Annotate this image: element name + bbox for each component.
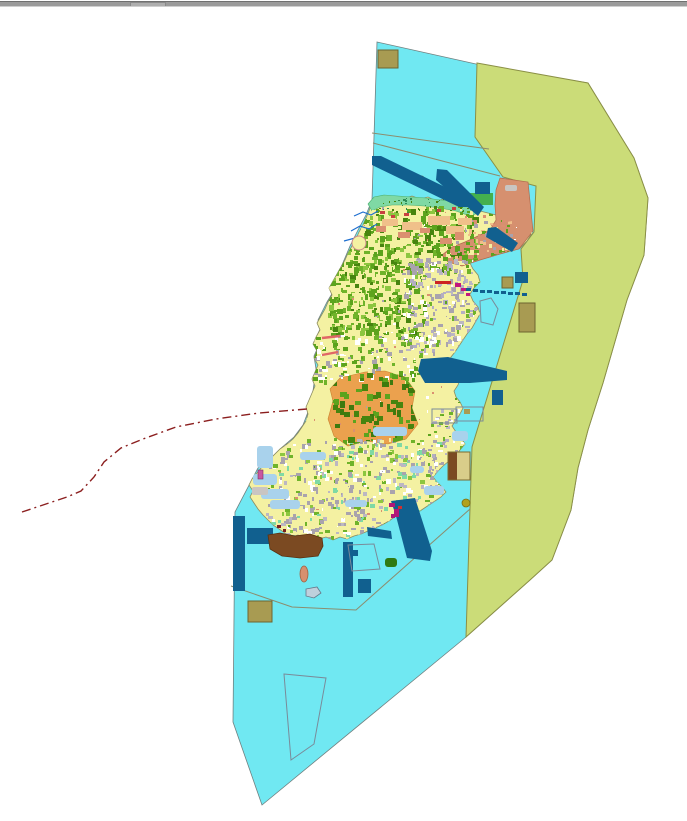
khaki-block-top bbox=[378, 50, 398, 68]
speckle bbox=[514, 239, 516, 240]
speckle bbox=[335, 213, 340, 219]
speckle bbox=[319, 532, 323, 534]
speckle bbox=[343, 236, 346, 240]
speckle bbox=[408, 305, 412, 309]
speckle bbox=[342, 290, 347, 293]
speckle bbox=[363, 257, 365, 262]
speckle bbox=[333, 241, 336, 243]
speckle bbox=[381, 366, 386, 368]
speckle bbox=[470, 310, 473, 312]
speckle bbox=[322, 366, 326, 369]
speckle bbox=[394, 346, 396, 348]
speckle bbox=[312, 349, 315, 353]
speckle bbox=[316, 491, 318, 494]
speckle bbox=[421, 245, 424, 247]
speckle bbox=[448, 340, 452, 344]
speckle bbox=[449, 412, 453, 415]
speckle bbox=[335, 266, 337, 269]
speckle bbox=[401, 270, 403, 273]
speckle bbox=[364, 225, 365, 226]
shallow-water-patches-item bbox=[452, 431, 468, 441]
speckle bbox=[476, 239, 478, 243]
speckle bbox=[474, 308, 477, 311]
speckle bbox=[367, 513, 370, 515]
speckle bbox=[375, 452, 378, 457]
speckle bbox=[410, 255, 412, 258]
speckle bbox=[354, 272, 358, 275]
speckle bbox=[278, 470, 281, 472]
speckle bbox=[398, 333, 401, 337]
speckle bbox=[378, 216, 381, 221]
speckle bbox=[400, 248, 404, 252]
speckle bbox=[414, 367, 418, 371]
speckle bbox=[350, 300, 353, 305]
speckle bbox=[454, 259, 458, 264]
speckle bbox=[319, 527, 322, 529]
speckle bbox=[318, 377, 322, 380]
speckle bbox=[402, 441, 405, 444]
speckle bbox=[362, 287, 365, 293]
speckle bbox=[436, 444, 440, 447]
speckle bbox=[414, 238, 416, 239]
speckle bbox=[368, 407, 371, 411]
speckle bbox=[306, 486, 310, 491]
speckle bbox=[368, 471, 371, 476]
speckle bbox=[440, 229, 443, 231]
speckle bbox=[376, 522, 381, 524]
speckle bbox=[337, 251, 341, 254]
speckle bbox=[319, 380, 323, 383]
speckle bbox=[405, 200, 407, 202]
speckle bbox=[436, 343, 439, 347]
speckle bbox=[391, 212, 393, 213]
speckle bbox=[359, 490, 361, 494]
speckle bbox=[328, 491, 330, 493]
speckle bbox=[418, 270, 423, 274]
navy-pier-chain-item bbox=[466, 288, 471, 291]
speckle bbox=[357, 497, 360, 500]
peach-patches-item bbox=[402, 222, 422, 230]
map-canvas[interactable] bbox=[0, 0, 687, 821]
speckle bbox=[352, 333, 357, 336]
speckle bbox=[420, 311, 423, 314]
speckle bbox=[396, 402, 403, 408]
speckle bbox=[426, 396, 429, 399]
speckle bbox=[402, 472, 406, 475]
speckle bbox=[374, 266, 378, 270]
magenta-cluster-port-item bbox=[391, 514, 395, 518]
speckle bbox=[334, 226, 337, 228]
speckle bbox=[346, 279, 349, 281]
speckle bbox=[393, 323, 396, 325]
speckle bbox=[386, 331, 387, 334]
speckle bbox=[337, 229, 338, 231]
speckle bbox=[417, 451, 420, 455]
speckle bbox=[440, 445, 443, 447]
speckle bbox=[331, 210, 334, 215]
speckle bbox=[317, 461, 322, 464]
speckle bbox=[455, 256, 458, 259]
speckle bbox=[436, 201, 438, 203]
speckle bbox=[408, 424, 413, 429]
speckle bbox=[352, 216, 357, 220]
speckle bbox=[298, 360, 300, 363]
speckle bbox=[401, 455, 404, 459]
speckle bbox=[382, 285, 384, 288]
speckle bbox=[397, 410, 401, 417]
speckle bbox=[406, 208, 407, 210]
speckle bbox=[429, 466, 432, 470]
speckle bbox=[353, 219, 355, 224]
speckle bbox=[404, 294, 406, 299]
speckle bbox=[418, 248, 423, 252]
speckle bbox=[345, 374, 349, 376]
speckle bbox=[284, 458, 288, 460]
speckle bbox=[391, 264, 394, 266]
speckle bbox=[326, 362, 329, 366]
speckle bbox=[330, 246, 333, 252]
speckle bbox=[337, 300, 343, 302]
speckle bbox=[262, 327, 265, 329]
speckle bbox=[313, 369, 318, 373]
speckle bbox=[271, 319, 273, 322]
speckle bbox=[368, 369, 372, 373]
speckle bbox=[410, 490, 413, 493]
speckle bbox=[354, 312, 358, 318]
speckle bbox=[394, 201, 396, 202]
speckle bbox=[380, 307, 383, 312]
peach-patches-item bbox=[382, 219, 398, 226]
speckle bbox=[354, 256, 358, 260]
speckle bbox=[506, 229, 508, 233]
speckle bbox=[397, 305, 400, 307]
speckle bbox=[431, 424, 434, 427]
speckle bbox=[474, 224, 478, 228]
speckle bbox=[329, 305, 334, 311]
speckle bbox=[316, 337, 321, 340]
speckle bbox=[396, 322, 399, 327]
speckle bbox=[467, 225, 470, 229]
north-red-marks-item bbox=[437, 209, 441, 212]
speckle bbox=[386, 487, 389, 491]
dark-dots-coast-item bbox=[277, 525, 281, 528]
speckle bbox=[357, 517, 361, 521]
speckle bbox=[467, 269, 471, 274]
speckle bbox=[396, 280, 400, 285]
speckle bbox=[439, 318, 442, 322]
speckle bbox=[370, 499, 371, 502]
speckle bbox=[428, 463, 430, 466]
speckle bbox=[434, 285, 436, 288]
speckle bbox=[405, 203, 407, 204]
speckle bbox=[412, 264, 415, 268]
speckle bbox=[406, 420, 410, 423]
speckle bbox=[384, 307, 390, 311]
speckle bbox=[445, 329, 447, 332]
speckle bbox=[367, 323, 373, 326]
speckle bbox=[448, 261, 452, 263]
speckle bbox=[305, 522, 307, 526]
speckle bbox=[446, 291, 451, 293]
speckle bbox=[437, 261, 441, 264]
speckle bbox=[341, 377, 343, 379]
speckle bbox=[377, 356, 379, 358]
speckle bbox=[340, 211, 342, 213]
speckle bbox=[342, 358, 344, 361]
speckle bbox=[381, 455, 386, 458]
speckle bbox=[352, 298, 354, 300]
speckle bbox=[401, 361, 405, 365]
speckle bbox=[324, 380, 327, 385]
speckle bbox=[429, 344, 431, 348]
speckle bbox=[382, 350, 385, 354]
speckle bbox=[355, 514, 360, 517]
speckle bbox=[392, 363, 395, 366]
speckle bbox=[447, 271, 450, 276]
speckle bbox=[408, 494, 412, 497]
magenta-cluster-east-item bbox=[461, 288, 466, 291]
speckle bbox=[386, 316, 391, 320]
speckle bbox=[351, 323, 354, 325]
speckle bbox=[471, 272, 473, 274]
speckle bbox=[367, 394, 373, 401]
speckle bbox=[374, 252, 377, 257]
speckle bbox=[437, 425, 441, 427]
speckle bbox=[424, 353, 428, 355]
speckle bbox=[349, 456, 352, 458]
speckle bbox=[372, 444, 375, 448]
speckle bbox=[333, 313, 337, 319]
speckle bbox=[337, 346, 340, 349]
speckle bbox=[415, 252, 421, 255]
speckle bbox=[427, 239, 428, 241]
navy-rect-northeast bbox=[475, 182, 490, 194]
speckle bbox=[360, 331, 364, 336]
speckle bbox=[441, 409, 444, 413]
speckle bbox=[404, 278, 406, 283]
speckle bbox=[399, 360, 401, 363]
speckle bbox=[374, 216, 378, 218]
speckle bbox=[320, 475, 322, 479]
speckle bbox=[347, 462, 351, 464]
speckle bbox=[491, 253, 494, 256]
speckle bbox=[380, 489, 383, 492]
speckle bbox=[446, 317, 449, 319]
speckle bbox=[459, 261, 462, 264]
speckle bbox=[275, 212, 276, 215]
speckle bbox=[372, 518, 376, 521]
speckle bbox=[399, 417, 403, 424]
speckle bbox=[288, 277, 291, 280]
speckle bbox=[414, 445, 416, 446]
navy-pier-chain-item bbox=[522, 293, 527, 296]
speckle bbox=[350, 214, 354, 219]
speckle bbox=[405, 384, 408, 388]
speckle bbox=[332, 225, 336, 230]
speckle bbox=[332, 232, 334, 238]
speckle bbox=[357, 361, 360, 365]
speckle bbox=[427, 250, 432, 253]
speckle bbox=[356, 365, 361, 368]
speckle bbox=[429, 244, 431, 246]
speckle bbox=[361, 418, 366, 424]
speckle bbox=[319, 500, 324, 504]
north-red-marks-item bbox=[452, 207, 456, 210]
speckle bbox=[363, 514, 367, 517]
speckle bbox=[331, 209, 335, 214]
speckle bbox=[309, 362, 311, 364]
speckle bbox=[400, 281, 402, 283]
speckle bbox=[343, 517, 344, 519]
speckle bbox=[339, 473, 342, 475]
speckle bbox=[355, 522, 359, 525]
speckle bbox=[452, 301, 455, 304]
speckle bbox=[378, 250, 383, 256]
speckle bbox=[317, 514, 321, 516]
speckle bbox=[400, 264, 406, 266]
speckle bbox=[336, 283, 341, 285]
speckle bbox=[287, 455, 289, 458]
speckle bbox=[296, 491, 300, 493]
speckle bbox=[347, 306, 351, 311]
speckle bbox=[368, 304, 373, 309]
speckle bbox=[361, 444, 365, 447]
navy-rect-east bbox=[492, 390, 503, 405]
speckle bbox=[449, 436, 451, 437]
speckle bbox=[333, 444, 336, 446]
speckle bbox=[432, 392, 434, 394]
speckle bbox=[408, 476, 412, 480]
speckle bbox=[383, 209, 384, 210]
speckle bbox=[334, 257, 337, 262]
speckle bbox=[333, 262, 335, 264]
speckle bbox=[365, 266, 368, 270]
speckle bbox=[360, 206, 366, 209]
speckle bbox=[342, 447, 343, 450]
speckle bbox=[318, 467, 320, 470]
speckle bbox=[337, 209, 340, 214]
speckle bbox=[428, 241, 433, 244]
speckle bbox=[374, 421, 379, 425]
speckle bbox=[311, 521, 315, 523]
speckle bbox=[284, 481, 287, 485]
speckle bbox=[448, 419, 451, 421]
speckle bbox=[323, 514, 325, 517]
speckle bbox=[358, 323, 361, 328]
speckle bbox=[276, 439, 280, 442]
speckle bbox=[358, 293, 361, 298]
speckle bbox=[457, 277, 461, 281]
speckle bbox=[352, 261, 358, 264]
speckle bbox=[421, 349, 424, 351]
speckle bbox=[361, 357, 363, 359]
speckle bbox=[406, 246, 412, 250]
speckle bbox=[420, 300, 424, 304]
speckle bbox=[319, 369, 322, 372]
speckle bbox=[358, 338, 361, 341]
speckle bbox=[383, 467, 387, 470]
speckle bbox=[358, 448, 363, 453]
speckle bbox=[316, 509, 319, 510]
speckle bbox=[310, 518, 312, 521]
speckle bbox=[418, 208, 419, 210]
speckle bbox=[467, 251, 469, 254]
speckle bbox=[433, 440, 437, 443]
speckle bbox=[289, 517, 292, 522]
speckle bbox=[427, 286, 429, 290]
navy-pier-chain-item bbox=[473, 289, 478, 292]
speckle bbox=[346, 228, 348, 234]
speckle bbox=[418, 407, 419, 410]
speckle bbox=[483, 215, 486, 218]
speckle bbox=[360, 464, 363, 467]
speckle bbox=[430, 285, 433, 288]
speckle bbox=[320, 468, 321, 471]
speckle bbox=[369, 268, 372, 273]
speckle bbox=[472, 222, 474, 226]
speckle bbox=[386, 215, 389, 217]
speckle bbox=[423, 211, 428, 216]
speckle bbox=[403, 492, 406, 495]
speckle bbox=[379, 485, 381, 489]
speckle bbox=[434, 431, 437, 433]
speckle bbox=[438, 452, 443, 456]
speckle bbox=[348, 263, 352, 268]
speckle bbox=[315, 405, 316, 407]
speckle bbox=[341, 500, 343, 504]
speckle bbox=[364, 251, 370, 254]
speckle bbox=[347, 337, 350, 339]
salmon-patches-item bbox=[398, 232, 410, 238]
speckle bbox=[457, 292, 460, 294]
speckle bbox=[403, 256, 406, 259]
speckle bbox=[436, 210, 437, 212]
speckle bbox=[305, 508, 308, 512]
speckle bbox=[373, 364, 378, 369]
speckle bbox=[454, 269, 458, 273]
speckle bbox=[367, 373, 373, 378]
speckle bbox=[413, 473, 415, 476]
speckle bbox=[377, 293, 383, 297]
speckle bbox=[357, 220, 359, 226]
speckle bbox=[418, 234, 420, 236]
speckle bbox=[336, 285, 341, 288]
speckle bbox=[335, 424, 340, 428]
red-dot-port bbox=[398, 506, 402, 509]
speckle bbox=[265, 326, 267, 327]
speckle bbox=[467, 208, 469, 209]
speckle bbox=[428, 335, 431, 338]
speckle bbox=[326, 498, 328, 501]
speckle bbox=[427, 410, 428, 413]
speckle bbox=[431, 445, 433, 447]
speckle bbox=[354, 267, 358, 271]
speckle bbox=[385, 324, 387, 327]
speckle bbox=[317, 450, 321, 452]
speckle bbox=[442, 307, 447, 309]
speckle bbox=[334, 224, 337, 227]
speckle bbox=[319, 493, 321, 496]
speckle bbox=[431, 244, 434, 246]
speckle bbox=[405, 288, 409, 292]
speckle bbox=[380, 358, 383, 363]
speckle bbox=[410, 198, 412, 200]
speckle bbox=[371, 352, 374, 353]
shallow-water-patches-item bbox=[424, 486, 444, 495]
speckle bbox=[445, 426, 448, 427]
speckle bbox=[451, 265, 453, 270]
speckle bbox=[363, 492, 367, 496]
